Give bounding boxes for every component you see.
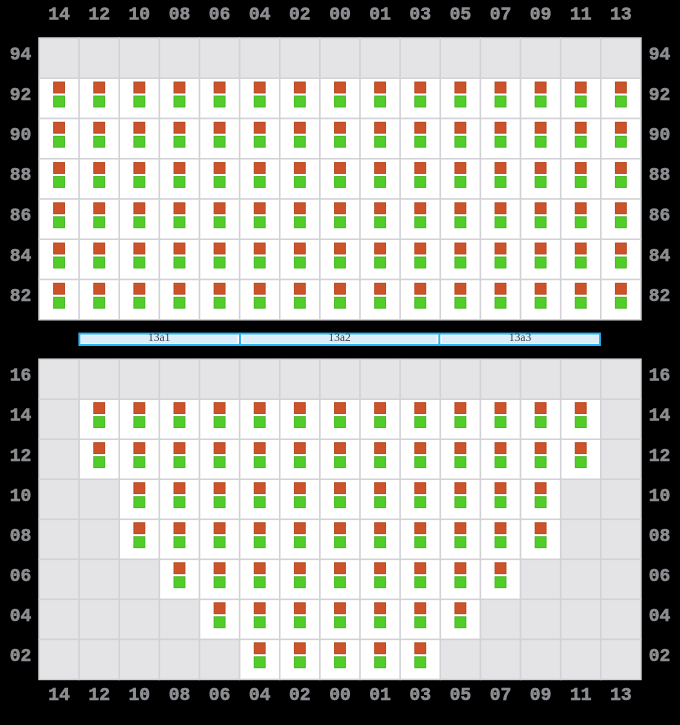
svg-text:92: 92 (10, 86, 32, 106)
svg-text:05: 05 (450, 686, 472, 706)
svg-text:86: 86 (649, 207, 671, 227)
svg-text:02: 02 (10, 647, 32, 667)
svg-text:02: 02 (289, 6, 311, 26)
svg-text:05: 05 (450, 6, 472, 26)
svg-text:92: 92 (649, 86, 671, 106)
svg-text:86: 86 (10, 207, 32, 227)
svg-text:88: 88 (649, 166, 671, 186)
svg-text:04: 04 (649, 607, 671, 627)
svg-text:12: 12 (10, 447, 32, 467)
svg-text:08: 08 (169, 686, 191, 706)
svg-text:84: 84 (10, 247, 32, 267)
svg-text:11: 11 (570, 686, 592, 706)
svg-text:12: 12 (88, 6, 110, 26)
svg-text:14: 14 (48, 686, 70, 706)
svg-text:03: 03 (409, 686, 431, 706)
svg-text:10: 10 (10, 487, 32, 507)
svg-text:94: 94 (649, 46, 671, 66)
svg-text:10: 10 (128, 686, 150, 706)
svg-text:08: 08 (10, 527, 32, 547)
svg-text:14: 14 (48, 6, 70, 26)
svg-text:01: 01 (369, 686, 391, 706)
svg-text:82: 82 (649, 287, 671, 307)
svg-text:13: 13 (610, 6, 632, 26)
svg-text:06: 06 (649, 567, 671, 587)
svg-text:04: 04 (10, 607, 32, 627)
svg-text:09: 09 (530, 686, 552, 706)
svg-text:01: 01 (369, 6, 391, 26)
svg-text:06: 06 (10, 567, 32, 587)
svg-text:14: 14 (649, 407, 671, 427)
svg-text:04: 04 (249, 6, 271, 26)
svg-text:13a3: 13a3 (509, 332, 532, 344)
svg-text:10: 10 (128, 6, 150, 26)
svg-text:09: 09 (530, 6, 552, 26)
svg-text:88: 88 (10, 166, 32, 186)
svg-text:12: 12 (88, 686, 110, 706)
svg-text:07: 07 (490, 6, 512, 26)
svg-text:16: 16 (649, 367, 671, 387)
svg-text:90: 90 (10, 126, 32, 146)
svg-text:16: 16 (10, 367, 32, 387)
svg-text:10: 10 (649, 487, 671, 507)
svg-text:82: 82 (10, 287, 32, 307)
svg-text:02: 02 (289, 686, 311, 706)
svg-text:04: 04 (249, 686, 271, 706)
svg-text:07: 07 (490, 686, 512, 706)
svg-text:06: 06 (209, 686, 231, 706)
svg-text:90: 90 (649, 126, 671, 146)
svg-text:14: 14 (10, 407, 32, 427)
svg-text:02: 02 (649, 647, 671, 667)
svg-text:03: 03 (409, 6, 431, 26)
svg-text:13: 13 (610, 686, 632, 706)
svg-text:84: 84 (649, 247, 671, 267)
svg-text:94: 94 (10, 46, 32, 66)
svg-text:13a2: 13a2 (328, 332, 351, 344)
svg-text:12: 12 (649, 447, 671, 467)
svg-text:11: 11 (570, 6, 592, 26)
svg-text:00: 00 (329, 686, 351, 706)
svg-text:00: 00 (329, 6, 351, 26)
svg-text:08: 08 (169, 6, 191, 26)
svg-text:06: 06 (209, 6, 231, 26)
svg-text:08: 08 (649, 527, 671, 547)
svg-text:13a1: 13a1 (148, 332, 171, 344)
